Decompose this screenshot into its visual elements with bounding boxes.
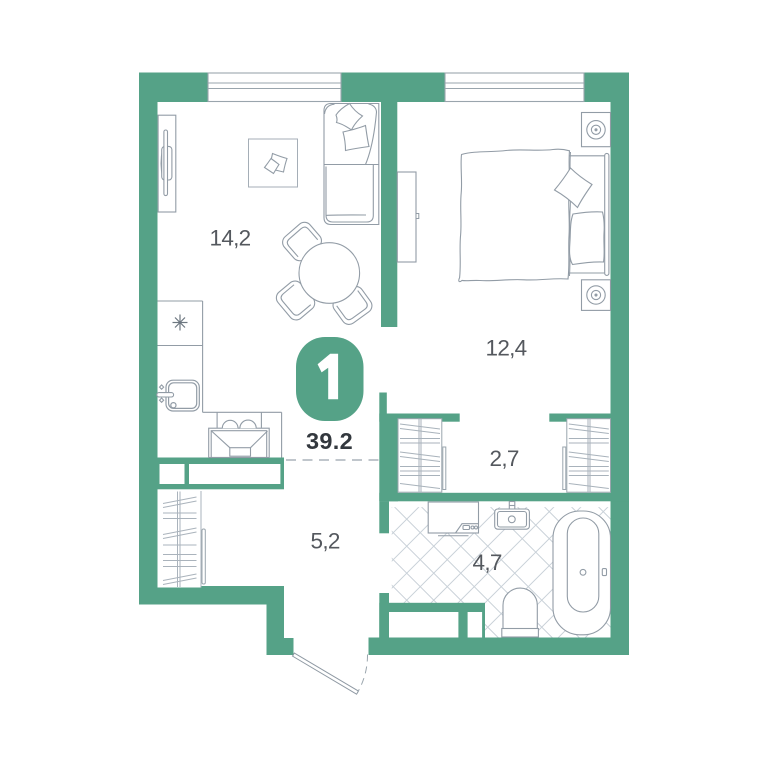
svg-text:12,4: 12,4 (486, 336, 527, 361)
svg-text:2,7: 2,7 (490, 446, 519, 471)
svg-text:5,2: 5,2 (311, 529, 340, 554)
svg-text:39.2: 39.2 (306, 428, 353, 454)
svg-text:14,2: 14,2 (210, 226, 251, 251)
svg-text:4,7: 4,7 (473, 550, 502, 575)
